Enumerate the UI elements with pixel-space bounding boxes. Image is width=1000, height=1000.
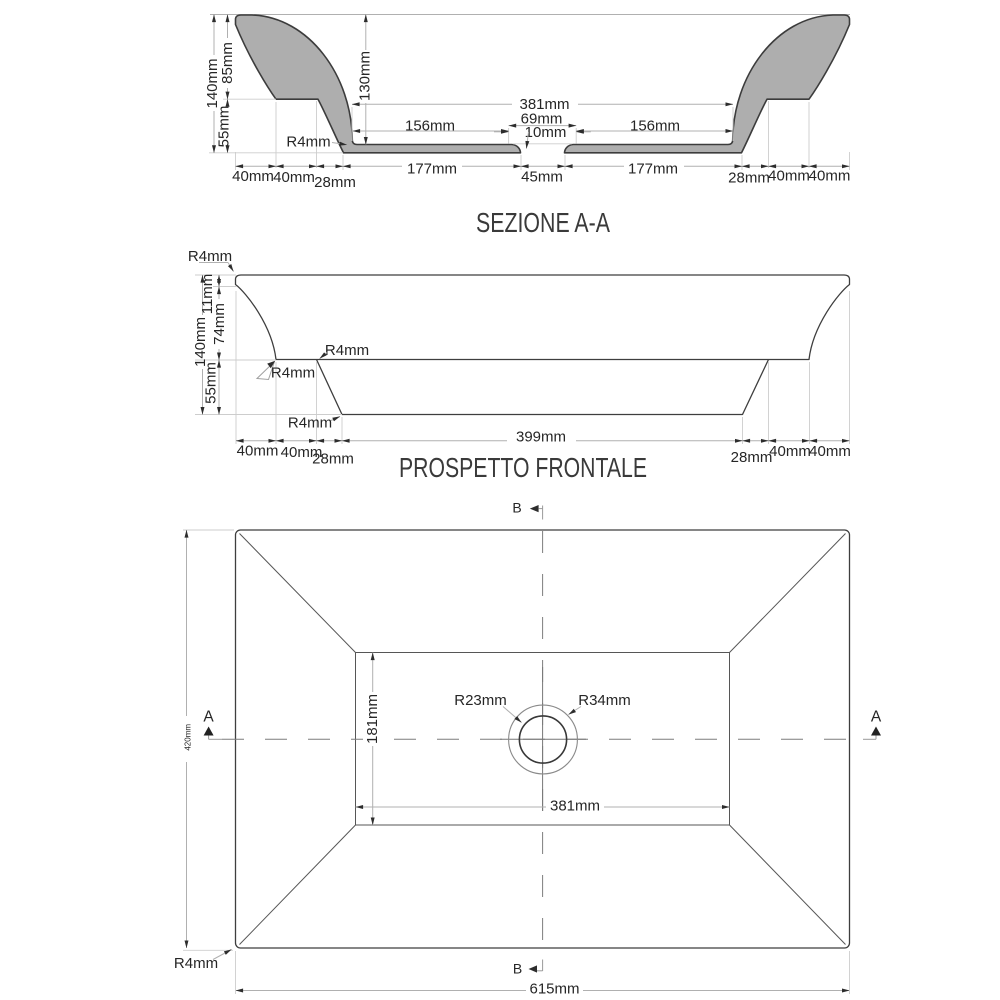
svg-text:28mm: 28mm (314, 174, 356, 191)
svg-text:R4mm: R4mm (325, 342, 369, 359)
svg-text:A: A (203, 709, 214, 726)
svg-text:B: B (512, 500, 521, 516)
svg-text:R23mm: R23mm (454, 692, 507, 709)
svg-text:140mm: 140mm (192, 317, 209, 367)
svg-text:130mm: 130mm (357, 51, 374, 101)
svg-text:381mm: 381mm (550, 798, 600, 815)
svg-text:55mm: 55mm (216, 106, 233, 148)
svg-text:R34mm: R34mm (578, 692, 631, 709)
svg-text:40mm: 40mm (237, 443, 279, 460)
svg-text:156mm: 156mm (630, 118, 680, 135)
svg-text:40mm: 40mm (232, 168, 274, 185)
svg-text:181mm: 181mm (364, 694, 381, 744)
svg-text:40mm: 40mm (768, 168, 810, 185)
svg-text:R4mm: R4mm (286, 134, 330, 151)
svg-text:74mm: 74mm (211, 303, 228, 345)
svg-text:SEZIONE A-A: SEZIONE A-A (476, 207, 610, 238)
svg-text:85mm: 85mm (219, 42, 236, 84)
svg-text:R4mm: R4mm (288, 415, 332, 432)
svg-text:156mm: 156mm (405, 118, 455, 135)
svg-text:10mm: 10mm (525, 124, 567, 141)
svg-text:A: A (871, 709, 882, 726)
svg-text:40mm: 40mm (273, 169, 315, 186)
svg-text:45mm: 45mm (521, 169, 563, 186)
svg-text:40mm: 40mm (769, 443, 811, 460)
svg-text:420mm: 420mm (184, 724, 193, 751)
svg-text:PROSPETTO FRONTALE: PROSPETTO FRONTALE (399, 452, 647, 483)
svg-text:399mm: 399mm (516, 429, 566, 446)
svg-text:55mm: 55mm (203, 362, 220, 404)
svg-text:28mm: 28mm (728, 170, 770, 187)
svg-text:B: B (513, 961, 522, 977)
svg-text:R4mm: R4mm (174, 955, 218, 972)
svg-text:28mm: 28mm (731, 449, 773, 466)
svg-text:28mm: 28mm (312, 451, 354, 468)
svg-text:615mm: 615mm (529, 981, 579, 998)
svg-text:R4mm: R4mm (271, 365, 315, 382)
svg-text:40mm: 40mm (809, 443, 851, 460)
svg-text:177mm: 177mm (407, 160, 457, 177)
svg-text:177mm: 177mm (628, 160, 678, 177)
svg-text:40mm: 40mm (809, 168, 851, 185)
